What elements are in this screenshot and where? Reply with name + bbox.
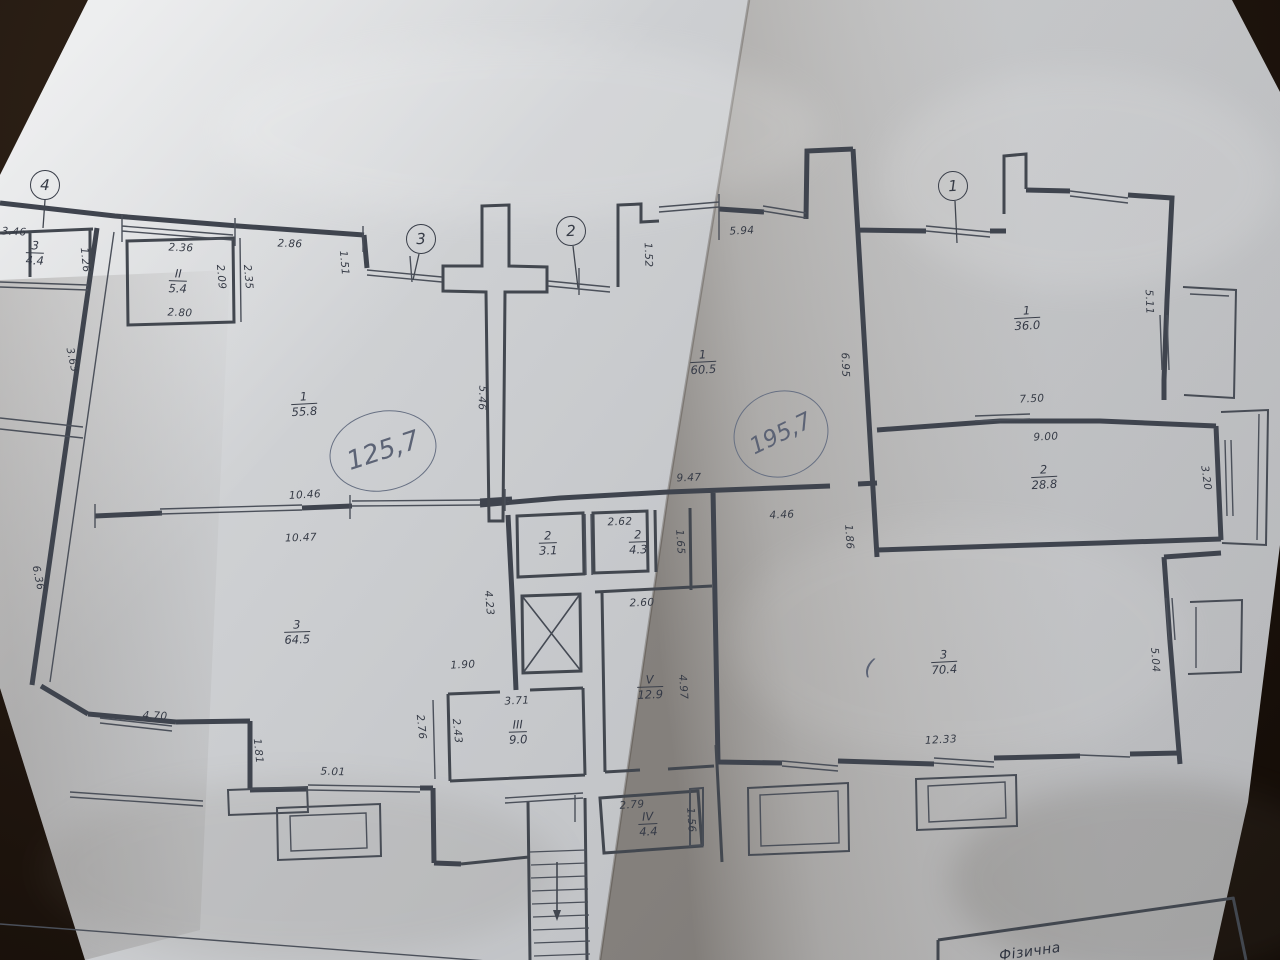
- room-area: 5.4: [168, 281, 187, 295]
- dimension-label: 1.26: [78, 247, 93, 273]
- dimension-label: 4.70: [142, 709, 168, 722]
- room-number: 2: [538, 529, 557, 544]
- dimension-label: 2.35: [241, 264, 255, 290]
- paper-sheen: [220, 40, 820, 220]
- room-label: 24.3: [628, 528, 647, 556]
- dimension-label: 4.23: [482, 590, 496, 616]
- room-number: II: [169, 267, 188, 282]
- dimension-label: 5.01: [320, 766, 345, 779]
- room-number: 3: [931, 648, 957, 663]
- room-label: 370.4: [931, 648, 958, 676]
- room-area: 60.5: [690, 362, 716, 376]
- dimension-label: 2.60: [629, 597, 654, 610]
- dimension-label: 9.00: [1033, 430, 1059, 443]
- room-area: 28.8: [1031, 477, 1057, 491]
- room-label: IV4.4: [638, 810, 659, 838]
- dimension-label: 1.81: [251, 738, 266, 764]
- floorplan-photo: 3.461.262.362.861.512.092.352.803.635.46…: [0, 0, 1280, 960]
- dimension-label: 2.09: [214, 264, 228, 290]
- room-area: 4.4: [638, 824, 658, 838]
- dimension-label: 6.95: [839, 352, 852, 377]
- paper-wrinkle: [730, 520, 1190, 760]
- handwritten-text: 125,7: [343, 425, 423, 477]
- room-area: 3.1: [539, 543, 558, 557]
- room-number: 3: [26, 239, 45, 254]
- dimension-label: 12.33: [925, 733, 958, 747]
- dimension-label: 2.43: [450, 718, 465, 744]
- dimension-label: 7.50: [1019, 392, 1045, 405]
- dimension-label: 5.46: [476, 385, 489, 410]
- dimension-label: 1.90: [450, 658, 476, 671]
- room-number: 1: [291, 390, 317, 405]
- dimension-label: 2.36: [168, 242, 193, 255]
- room-label: III9.0: [508, 718, 527, 746]
- dimension-label: 2.86: [277, 238, 302, 251]
- dimension-label: 2.62: [607, 516, 632, 529]
- room-area: 4.3: [629, 542, 648, 556]
- dimension-label: 2.80: [167, 307, 192, 320]
- dimension-label: 1.65: [673, 529, 687, 555]
- room-label: 155.8: [291, 390, 318, 418]
- room-number: 3: [284, 618, 310, 633]
- dimension-label: 1.52: [642, 242, 655, 267]
- room-label: 228.8: [1031, 463, 1058, 491]
- dimension-label: 4.46: [769, 508, 795, 521]
- room-area: 12.9: [637, 687, 663, 701]
- room-label: 34.4: [25, 239, 44, 267]
- dimension-label: 1.56: [684, 807, 698, 833]
- room-number: 1: [1014, 304, 1040, 319]
- room-number: IV: [638, 810, 658, 825]
- dimension-label: 1.51: [337, 250, 351, 276]
- dimension-label: 3.46: [1, 225, 27, 238]
- room-number: V: [637, 673, 663, 688]
- dimension-label: 4.97: [676, 674, 690, 700]
- room-area: 36.0: [1014, 318, 1040, 332]
- room-number: 2: [628, 528, 647, 543]
- room-number: 1: [690, 348, 716, 363]
- room-area: 64.5: [284, 632, 310, 646]
- dimension-label: 10.46: [289, 488, 322, 502]
- room-number: III: [508, 718, 527, 733]
- room-label: II5.4: [168, 267, 187, 295]
- dimension-label: 2.76: [414, 714, 429, 740]
- dimension-label: 5.11: [1143, 289, 1156, 314]
- dimension-label: 1.86: [842, 524, 856, 550]
- room-area: 70.4: [931, 662, 957, 676]
- dimension-label: 9.47: [676, 472, 701, 485]
- dimension-label: 5.04: [1148, 647, 1162, 673]
- dimension-label: 10.47: [285, 531, 317, 544]
- room-area: 55.8: [291, 404, 317, 418]
- room-label: 364.5: [284, 618, 311, 646]
- room-label: 136.0: [1014, 304, 1041, 332]
- room-label: 23.1: [538, 529, 557, 557]
- room-number: 2: [1031, 463, 1057, 478]
- room-area: 4.4: [25, 253, 44, 267]
- room-area: 9.0: [509, 732, 528, 746]
- handwritten-text: 195,7: [746, 408, 817, 460]
- dimension-label: 5.94: [729, 224, 755, 237]
- dimension-label: 3.71: [504, 694, 530, 707]
- room-label: 160.5: [690, 348, 717, 376]
- room-label: V12.9: [637, 673, 664, 701]
